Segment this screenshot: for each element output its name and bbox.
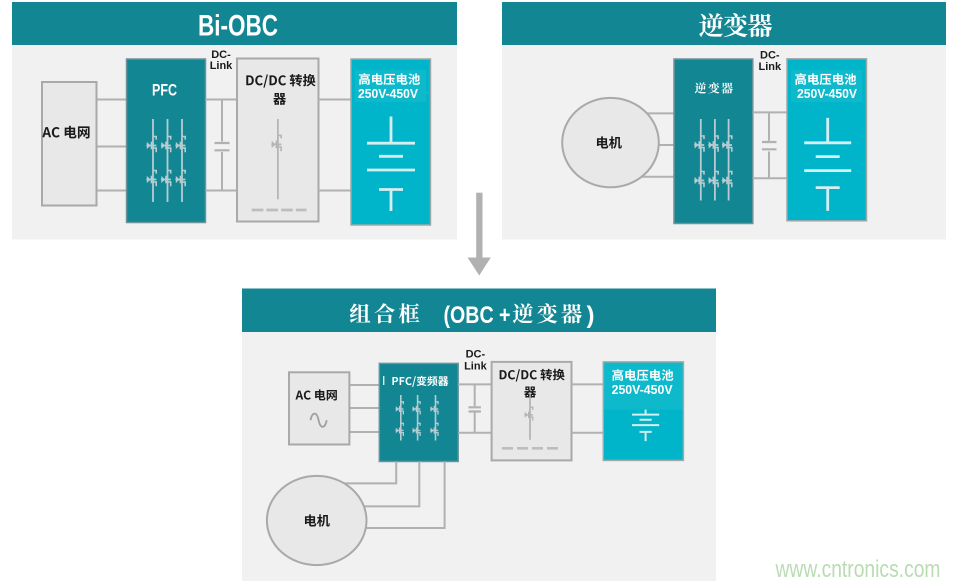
svg-text:DC-: DC- [466, 349, 486, 361]
svg-text:Link: Link [758, 61, 781, 73]
svg-text:www.cntronics.com: www.cntronics.com [775, 556, 941, 583]
svg-text:Link: Link [464, 360, 487, 372]
svg-text:250V-450V: 250V-450V [797, 86, 857, 101]
svg-text:250V-450V: 250V-450V [612, 382, 673, 397]
svg-text:(OBC +: (OBC + [444, 302, 511, 329]
svg-text:): ) [587, 302, 595, 329]
svg-text:Bi-OBC: Bi-OBC [198, 10, 278, 43]
svg-text:DC-: DC- [211, 49, 231, 61]
svg-text:Link: Link [210, 60, 233, 72]
svg-text:250V-450V: 250V-450V [358, 86, 418, 101]
svg-text:PFC: PFC [152, 80, 177, 99]
svg-text:DC-: DC- [760, 49, 780, 61]
